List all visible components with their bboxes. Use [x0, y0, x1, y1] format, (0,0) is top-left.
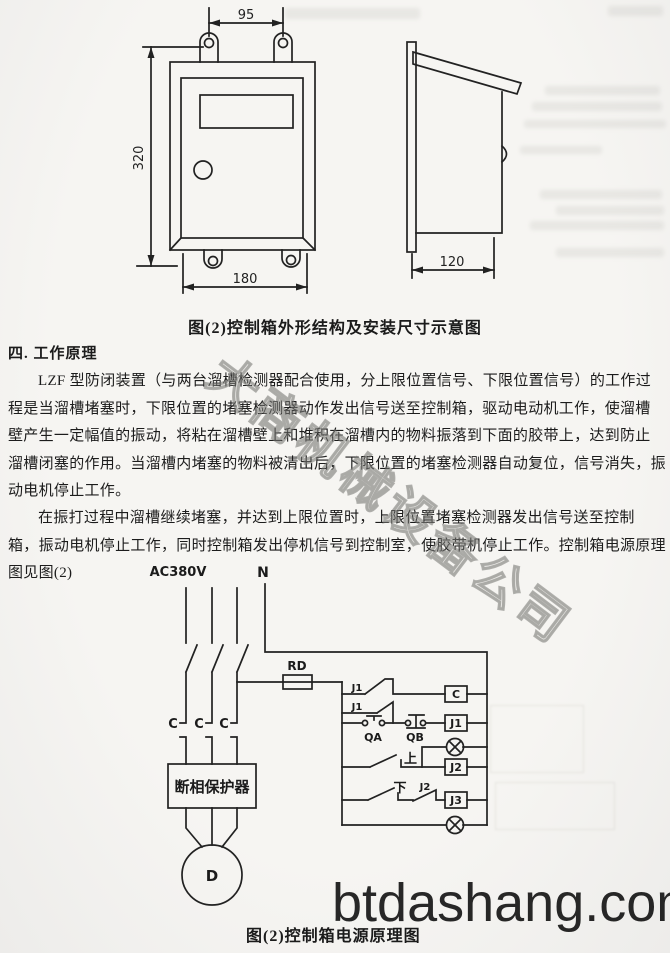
rung-relay-j2: J2 上 — [342, 751, 487, 775]
contact-lower-label: 下 — [393, 780, 406, 795]
paragraph1-line: 溜槽闭塞的作用。当溜槽内堵塞的物料被清出后，下限位置的堵塞检测器自动复位，信号消… — [8, 451, 668, 478]
rung-selfhold: J1 — [342, 702, 393, 723]
dim-top-value: 95 — [238, 8, 255, 23]
paragraph2-line: 在振打过程中溜槽继续堵塞，并达到上限位置时，上限位置堵塞检测器发出信号送至控制 — [8, 505, 668, 532]
dimension-320: 320 — [132, 47, 203, 266]
section-title: 四. 工作原理 — [8, 341, 668, 368]
paragraph2-line: 箱，振动电机停止工作，同时控制箱发出停机信号到控制室，使胶带机停止工作。控制箱电… — [8, 533, 668, 560]
button-qb-label: QB — [406, 731, 424, 744]
rung-relay-j3: J3 下 J2 — [342, 780, 487, 808]
ac380v-label: AC380V — [150, 565, 207, 580]
indicator-lamp-lower — [342, 817, 487, 834]
fuse-label: RD — [287, 659, 306, 673]
neutral-wire — [265, 584, 487, 825]
button-qa-label: QA — [364, 731, 382, 744]
coil-c-label: C — [452, 688, 460, 701]
phase-lines: C C C — [168, 588, 248, 764]
phase-contact-label: C — [219, 717, 229, 732]
coil-j2-label: J2 — [449, 761, 462, 774]
body-text: 四. 工作原理 LZF 型防闭装置（与两台溜槽检测器配合使用，分上限位置信号、下… — [8, 341, 668, 588]
paragraph1-line: 动电机停止工作。 — [8, 478, 668, 505]
dimension-180: 180 — [183, 254, 307, 293]
rung-relay-j1: J1 QA QB — [342, 715, 487, 744]
phase-protector-box: 断相保护器 — [168, 764, 256, 808]
contact-j2-label: J2 — [419, 782, 431, 793]
motor-symbol: D — [182, 808, 242, 905]
contact-j1-aux-label: J1 — [351, 702, 363, 713]
dim-left-value: 320 — [132, 146, 147, 171]
figure2-caption: 图(2)控制箱电源原理图 — [246, 922, 421, 946]
side-view-box — [407, 42, 521, 252]
motor-label: D — [206, 867, 218, 885]
dim-bottom-value: 180 — [233, 272, 258, 287]
fuse-rd: RD — [237, 659, 342, 689]
scanned-document-page: 95 320 — [0, 0, 670, 953]
paragraph1-line: 程是当溜槽堵塞时，下限位置的堵塞检测器动作发出信号送至控制箱，驱动电动机工作，使… — [8, 396, 668, 423]
rung-contactor: C J1 — [342, 679, 487, 702]
contact-upper-label: 上 — [404, 751, 417, 766]
phase-protector-label: 断相保护器 — [174, 778, 250, 796]
dim-depth-value: 120 — [440, 255, 465, 270]
dimension-120: 120 — [412, 238, 494, 278]
paragraph1-line: 壁产生一定幅值的振动，将粘在溜槽壁上和堆积在溜槽内的物料振落到下面的胶带上，达到… — [8, 423, 668, 450]
contact-j1-label: J1 — [351, 683, 363, 694]
phase-contact-label: C — [194, 717, 204, 732]
coil-j3-label: J3 — [449, 794, 462, 807]
figure1-control-box-drawing: 95 320 — [0, 0, 670, 310]
dimension-95: 95 — [209, 8, 283, 36]
coil-j1-label: J1 — [449, 717, 462, 730]
phase-contact-label: C — [168, 717, 178, 732]
front-view-box — [170, 33, 315, 268]
neutral-label: N — [257, 565, 269, 581]
paragraph1-line: LZF 型防闭装置（与两台溜槽检测器配合使用，分上限位置信号、下限位置信号）的工… — [8, 368, 668, 395]
figure1-caption: 图(2)控制箱外形结构及安装尺寸示意图 — [0, 314, 670, 338]
